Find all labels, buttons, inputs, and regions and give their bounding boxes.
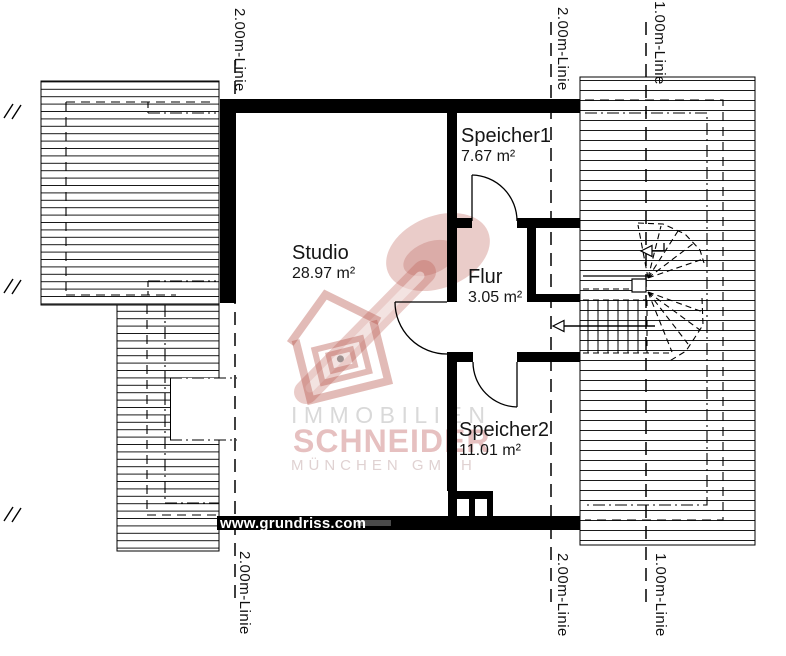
height-line-label-top-right: 1.00m-Linie: [651, 1, 668, 85]
height-line-label-top-middle: 2.00m-Linie: [554, 7, 571, 91]
room-area-speicher2: 11.01 m²: [459, 443, 549, 460]
room-name-studio: Studio: [292, 243, 355, 264]
room-area-speicher1: 7.67 m²: [461, 149, 551, 166]
stair-newel-post: [632, 279, 646, 292]
wall-shaft-left: [527, 226, 536, 296]
section-marks: [4, 104, 21, 522]
wall-top: [220, 99, 580, 113]
room-name-speicher1: Speicher1: [461, 126, 551, 147]
room-area-studio: 28.97 m²: [292, 266, 355, 283]
height-line-label-bottom-middle: 2.00m-Linie: [554, 553, 571, 637]
wall-speicher2-top-left: [447, 352, 473, 362]
height-line-label-bottom-left: 2.00m-Linie: [236, 551, 253, 635]
wall-shaft-bottom: [527, 294, 580, 302]
dormer-notch: [171, 378, 237, 440]
wall-studio-divider-lower: [447, 354, 457, 491]
roof-area-right: [580, 77, 755, 545]
roof-area-left-lower: [117, 305, 237, 551]
chimney-flue-1: [457, 499, 469, 516]
room-label-speicher1: Speicher1 7.67 m²: [461, 126, 551, 166]
door-speicher2: [473, 362, 517, 407]
room-label-flur: Flur 3.05 m²: [468, 267, 522, 307]
wall-studio-divider-upper: [447, 113, 457, 302]
wall-left: [220, 99, 236, 303]
chimney-flue-2: [475, 499, 487, 516]
room-name-flur: Flur: [468, 267, 522, 288]
room-area-flur: 3.05 m²: [468, 290, 522, 307]
room-label-studio: Studio 28.97 m²: [292, 243, 355, 283]
room-label-speicher2: Speicher2 11.01 m²: [459, 420, 549, 460]
door-speicher1: [472, 175, 517, 221]
website-stamp: www.grundriss.com: [220, 515, 366, 532]
wall-speicher2-top-right: [517, 352, 580, 362]
stair-direction-arrow: [553, 321, 564, 332]
wall-speicher1-bottom-right: [517, 218, 580, 228]
height-line-label-top-left: 2.00m-Linie: [231, 8, 248, 92]
wall-speicher1-bottom-left: [447, 218, 472, 228]
room-name-speicher2: Speicher2: [459, 420, 549, 441]
roof-area-left-upper: [41, 81, 219, 305]
floor-plan-canvas: IMMOBILIEN SCHNEIDER MÜNCHEN GMBH: [0, 0, 786, 656]
height-line-label-bottom-right: 1.00m-Linie: [652, 553, 669, 637]
